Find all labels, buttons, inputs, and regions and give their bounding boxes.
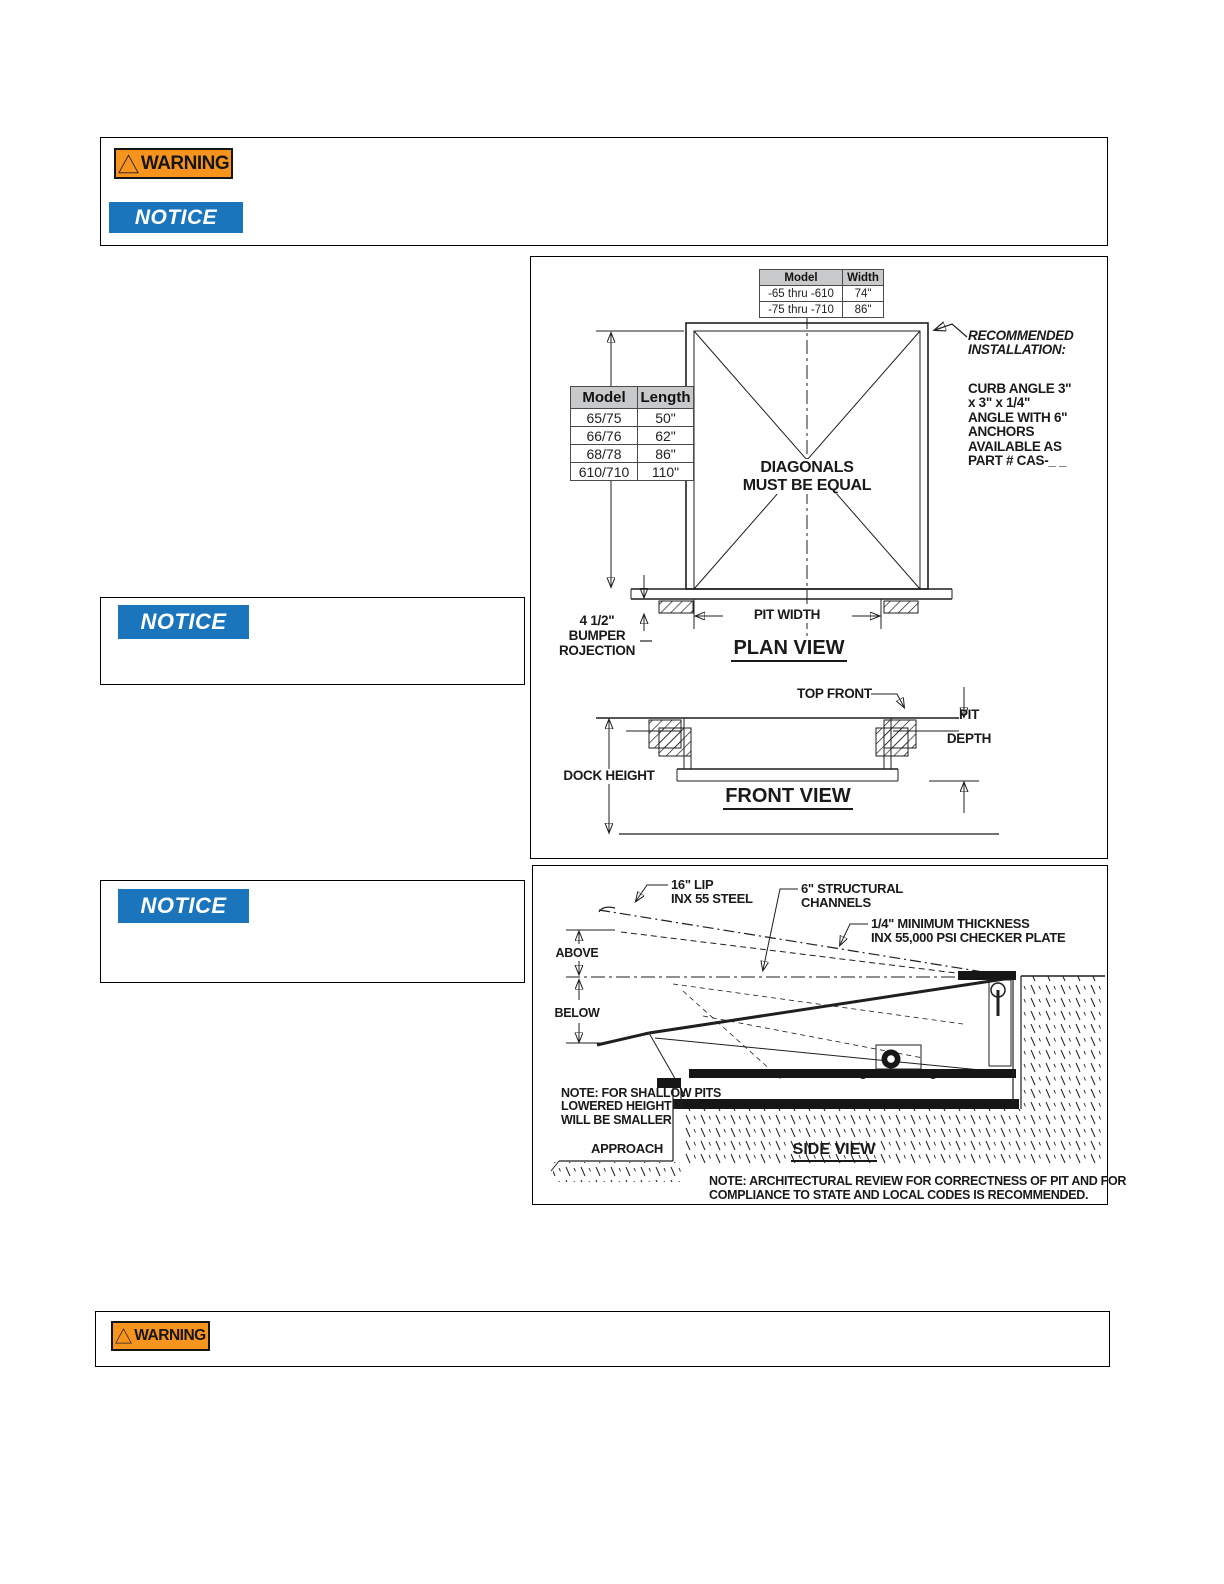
- pit-label: PIT: [949, 708, 989, 723]
- notice-badge: NOTICE: [118, 889, 249, 923]
- warning-badge: WARNING: [111, 1321, 210, 1351]
- table-row: Model Width: [760, 270, 884, 286]
- table-row: 68/78 86": [571, 445, 694, 463]
- top-front-label: TOP FRONT: [797, 687, 872, 702]
- architectural-review-note: NOTE: ARCHITECTURAL REVIEW FOR CORRECTNE…: [709, 1174, 1126, 1202]
- notice-badge-label: NOTICE: [135, 206, 217, 230]
- depth-label: DEPTH: [938, 732, 1000, 747]
- checker-plate-label: 1/4" MINIMUM THICKNESS INX 55,000 PSI CH…: [871, 917, 1065, 946]
- bumper-projection-label: 4 1/2" BUMPER ROJECTION: [549, 613, 645, 658]
- approach-label: APPROACH: [591, 1142, 663, 1156]
- document-page: WARNING NOTICE: [0, 0, 1224, 1584]
- side-view-box: 16" LIP INX 55 STEEL 6" STRUCTURAL CHANN…: [532, 865, 1108, 1205]
- notice-badge: NOTICE: [109, 202, 243, 233]
- pit-width-label: PIT WIDTH: [742, 608, 832, 623]
- table-row: -75 thru -710 86": [760, 302, 884, 318]
- length-table-header-model: Model: [571, 387, 638, 409]
- notice-badge-label: NOTICE: [140, 893, 226, 919]
- below-label: BELOW: [551, 1007, 603, 1021]
- length-table-header-length: Length: [638, 387, 694, 409]
- structural-channels-label: 6" STRUCTURAL CHANNELS: [801, 882, 903, 911]
- bottom-warning-box: WARNING: [95, 1311, 1110, 1367]
- plan-front-view-box: Model Width -65 thru -610 74" -75 thru -…: [530, 256, 1108, 859]
- table-row: 65/75 50": [571, 409, 694, 427]
- warning-badge-label: WARNING: [134, 1327, 205, 1345]
- table-row: 66/76 62": [571, 427, 694, 445]
- length-table: Model Length 65/75 50" 66/76 62" 68/78 8…: [570, 386, 694, 481]
- warning-triangle-icon: [118, 154, 139, 174]
- notice-box-1: NOTICE: [100, 597, 525, 685]
- warning-triangle-icon: [115, 1328, 132, 1344]
- top-warning-notice-box: WARNING NOTICE: [100, 137, 1108, 246]
- width-table-header-model: Model: [760, 270, 843, 286]
- side-view-title: SIDE VIEW: [773, 1141, 895, 1162]
- lip-label: 16" LIP INX 55 STEEL: [671, 878, 753, 907]
- warning-badge: WARNING: [114, 148, 233, 179]
- notice-badge-label: NOTICE: [140, 609, 226, 635]
- front-view-title: FRONT VIEW: [703, 785, 873, 810]
- plan-view-title: PLAN VIEW: [709, 637, 869, 662]
- table-row: -65 thru -610 74": [760, 286, 884, 302]
- above-label: ABOVE: [551, 947, 603, 961]
- width-table-header-width: Width: [843, 270, 884, 286]
- table-row: Model Length: [571, 387, 694, 409]
- warning-badge-label: WARNING: [141, 153, 229, 175]
- dock-height-label: DOCK HEIGHT: [553, 769, 665, 784]
- shallow-pit-note: NOTE: FOR SHALLOW PITS LOWERED HEIGHT WI…: [561, 1087, 721, 1127]
- width-table: Model Width -65 thru -610 74" -75 thru -…: [759, 269, 884, 318]
- recommended-installation-note: RECOMMENDED INSTALLATION: CURB ANGLE 3" …: [968, 329, 1073, 469]
- notice-badge: NOTICE: [118, 605, 249, 639]
- table-row: 610/710 110": [571, 463, 694, 481]
- diagonals-note: DIAGONALS MUST BE EQUAL: [721, 459, 893, 494]
- notice-box-2: NOTICE: [100, 880, 525, 983]
